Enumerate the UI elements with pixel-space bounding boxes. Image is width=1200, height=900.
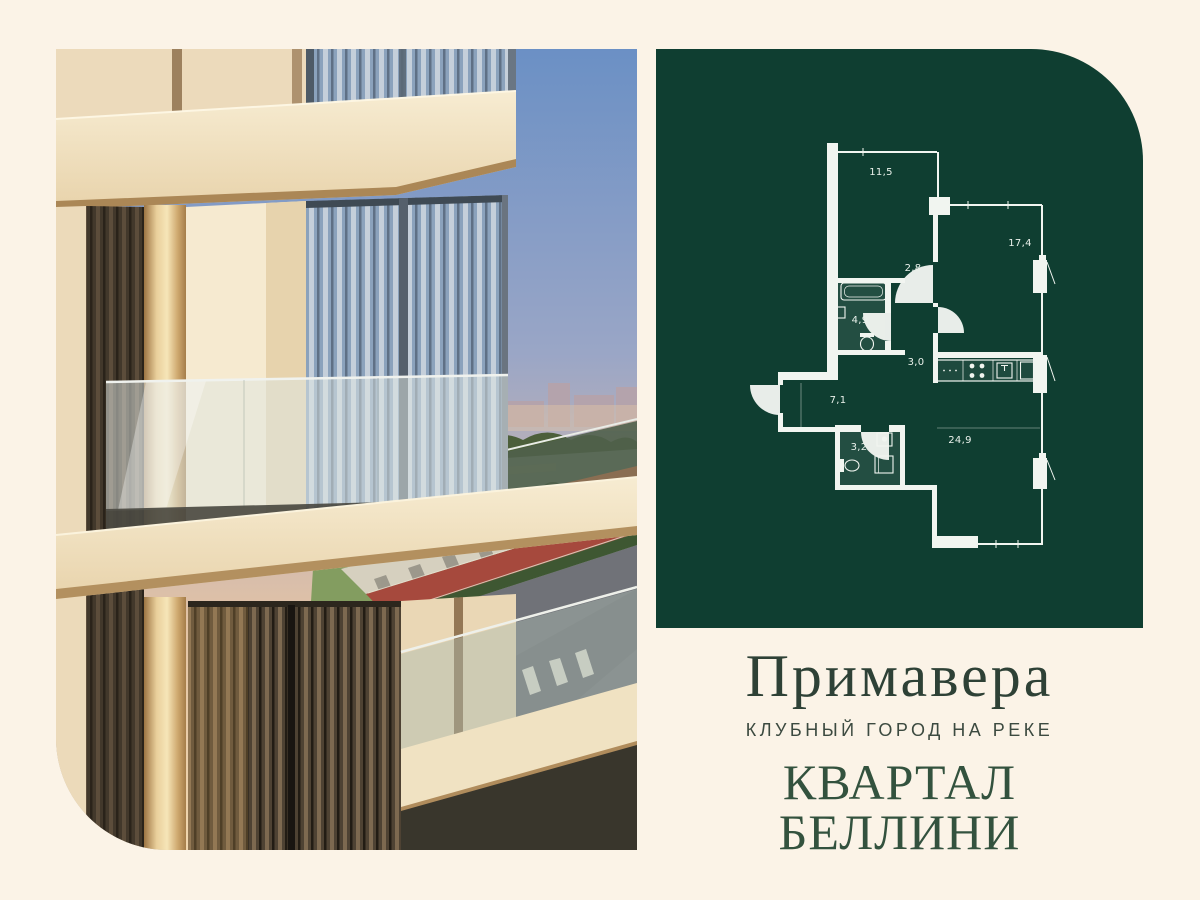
toilet-icon (840, 459, 844, 472)
floor-plan: 11,517,42,84,93,07,13,224,9 (656, 49, 1143, 628)
window-frame (399, 49, 406, 98)
window-mullion (288, 605, 295, 850)
building-photo (56, 49, 637, 850)
room-area-label: 7,1 (830, 395, 847, 406)
toilet-icon (860, 333, 874, 337)
ad-banner: 11,517,42,84,93,07,13,224,9 Примавера КЛ… (0, 0, 1200, 900)
window-frame (306, 49, 314, 105)
plan-walls (778, 143, 1043, 548)
facade-groove (292, 49, 302, 109)
project-tagline: КЛУБНЫЙ ГОРОД НА РЕКЕ (656, 720, 1143, 741)
building-photo-art (56, 49, 637, 850)
gold-pillar-lower (144, 597, 186, 850)
room-area-label: 24,9 (948, 435, 971, 446)
floor-plan-panel: 11,517,42,84,93,07,13,224,9 (656, 49, 1143, 628)
plan-windows (1033, 255, 1055, 489)
caption-block: Примавера КЛУБНЫЙ ГОРОД НА РЕКЕ КВАРТАЛ … (656, 628, 1143, 857)
room-area-label: 3,2 (851, 442, 868, 453)
facade-groove (172, 49, 182, 113)
left-wall-strip (56, 206, 86, 850)
warm-light (188, 605, 248, 850)
quarter-name: КВАРТАЛ БЕЛЛИНИ (656, 757, 1143, 857)
room-area-label: 2,8 (905, 263, 922, 274)
room-area-label: 4,9 (852, 315, 869, 326)
room-area-label: 11,5 (869, 167, 892, 178)
window-frame (508, 49, 516, 93)
room-area-label: 17,4 (1008, 238, 1031, 249)
project-name: Примавера (656, 646, 1143, 706)
room-area-label: 3,0 (908, 357, 925, 368)
